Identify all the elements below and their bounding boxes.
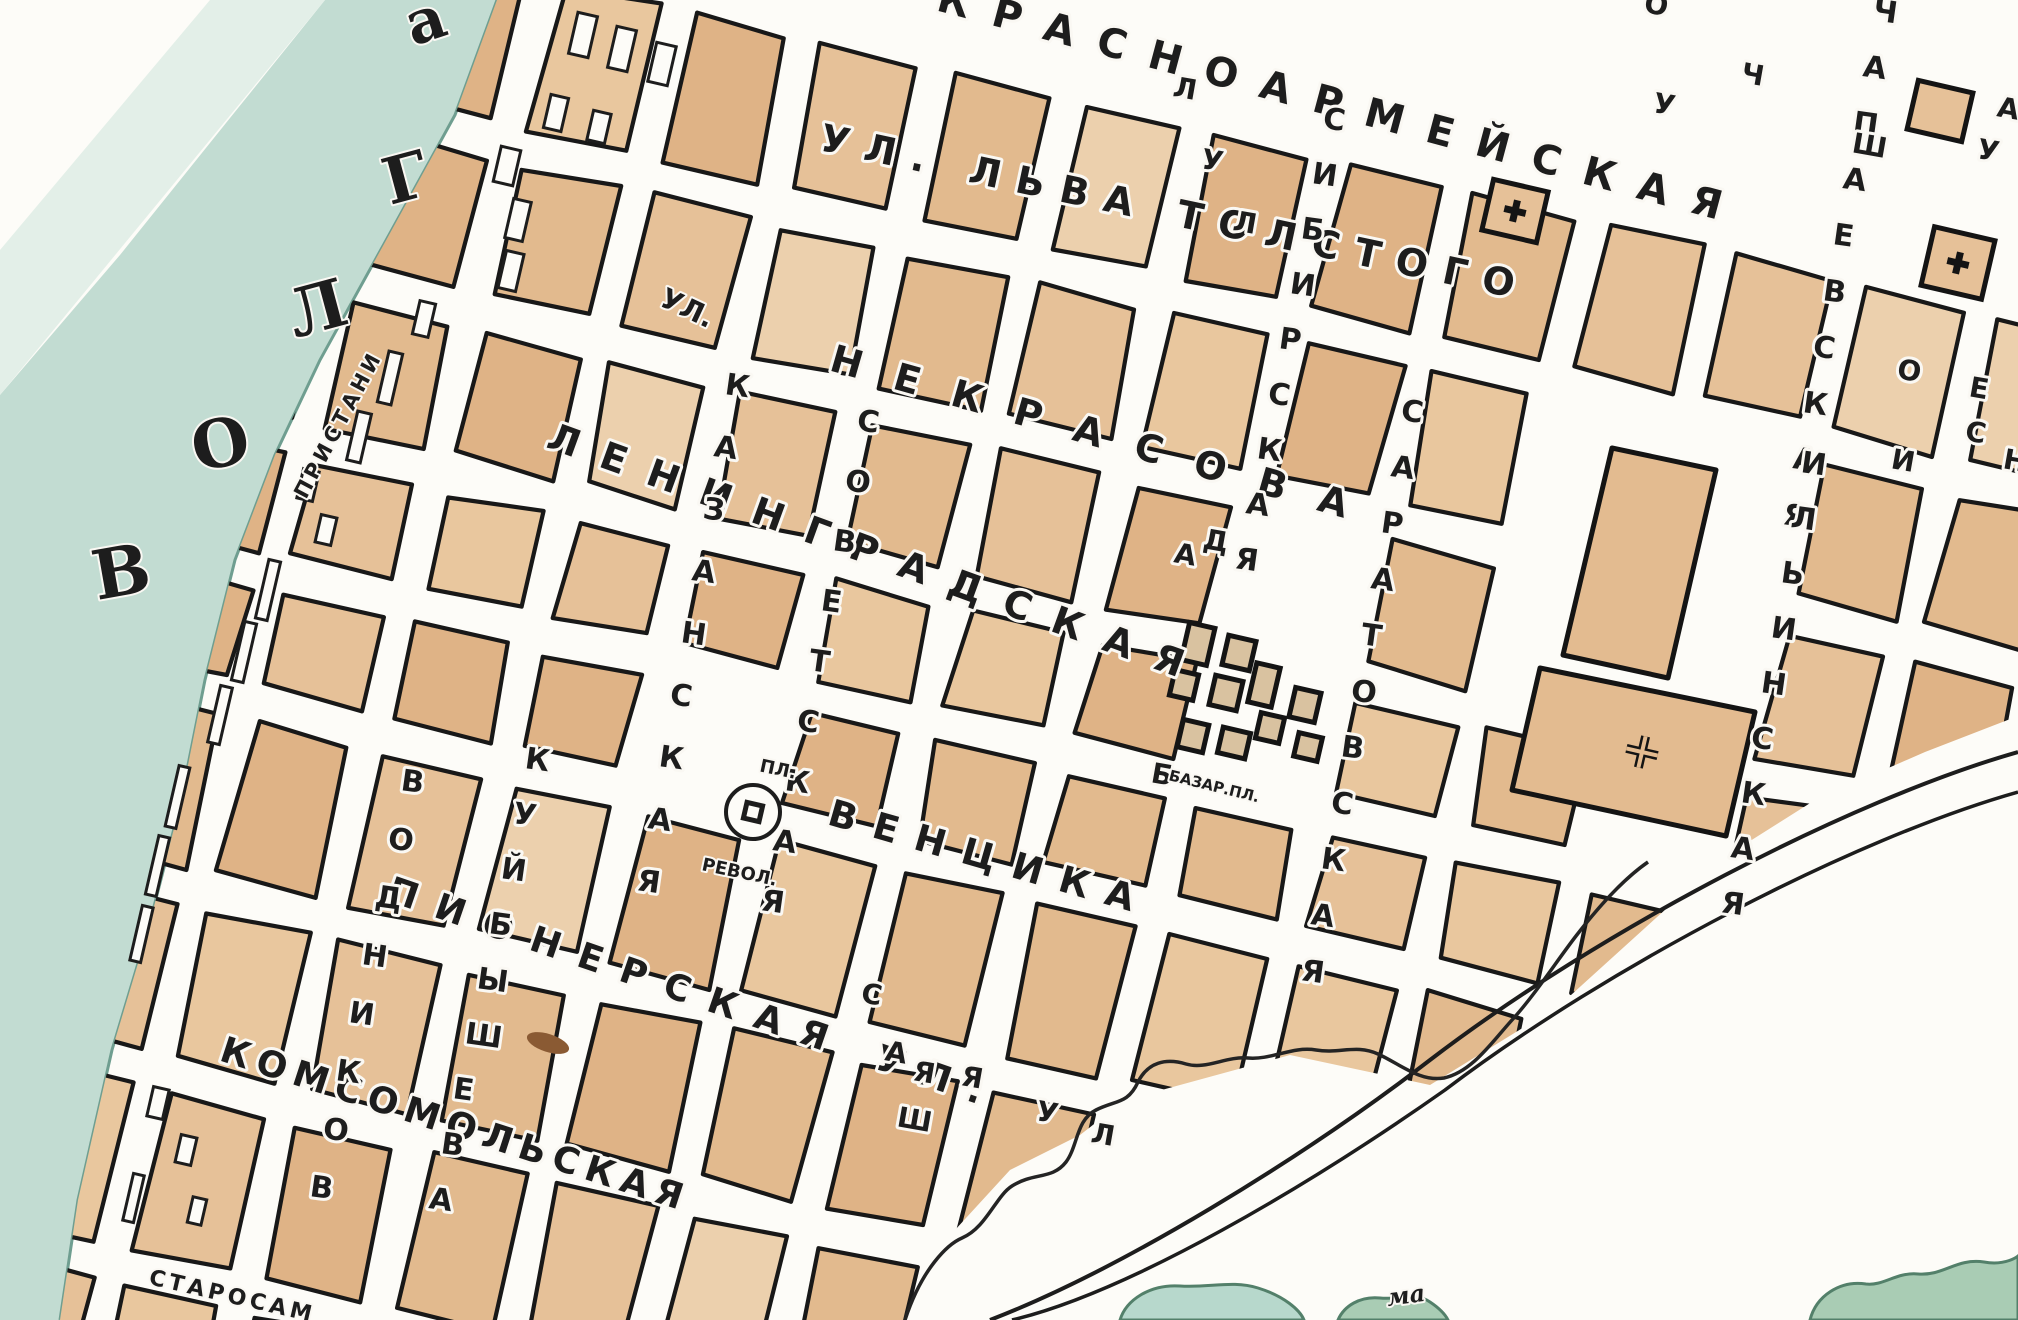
street-letter: Я — [635, 863, 663, 901]
city-block — [394, 621, 507, 743]
city-block — [1657, 1051, 1782, 1228]
stray-letter: О — [1642, 0, 1671, 23]
street-letter: Б — [1299, 211, 1327, 249]
city-block — [917, 1273, 1049, 1320]
street-letter: К — [1801, 385, 1831, 423]
monument-square-icon — [743, 802, 762, 821]
pond-note: ма — [1385, 1278, 1427, 1312]
street-letter: С — [668, 677, 695, 715]
street-letter: С — [1811, 329, 1838, 367]
street-letter: Е — [1831, 217, 1856, 255]
street-letter: В — [399, 763, 427, 801]
city-block — [1180, 808, 1292, 919]
city-block — [1799, 465, 1922, 622]
street-letter: Й — [499, 850, 529, 889]
street-letter: В — [831, 523, 859, 561]
pier — [493, 146, 521, 186]
city-block — [132, 1093, 264, 1268]
street-letter: З — [701, 491, 727, 529]
city-block — [1784, 1085, 1920, 1258]
street-letter: Н — [679, 615, 709, 653]
street-letter: У — [511, 796, 539, 834]
street-letter: Я — [1299, 953, 1327, 991]
city-block — [958, 1093, 1094, 1258]
small-block — [1907, 80, 1973, 141]
street-letter: Ш — [463, 1016, 505, 1056]
market-stall — [1209, 675, 1243, 711]
city-block — [1754, 636, 1883, 776]
city-block — [663, 13, 784, 185]
street-letter: С — [1321, 101, 1348, 139]
city-block — [1924, 500, 2018, 651]
city-block — [1132, 934, 1267, 1103]
street-letter: О — [321, 1111, 351, 1149]
market-label: БАЗАР.ПЛ. — [1167, 766, 1261, 806]
street-letter: Д — [373, 879, 404, 917]
street-letter: Н — [1759, 665, 1789, 703]
pond — [1120, 1284, 1304, 1320]
hospital-l-block-part1 — [1563, 448, 1716, 678]
stray-letter: Ш — [895, 1100, 935, 1139]
street-letter: О — [843, 463, 873, 501]
street-letter: Ч — [1871, 0, 1900, 31]
monument-outer-circle — [726, 785, 780, 839]
city-block — [267, 1128, 391, 1303]
city-block — [654, 1219, 787, 1320]
revolution-square-monument — [726, 785, 780, 839]
city-block — [1007, 904, 1135, 1079]
pier — [255, 559, 280, 620]
street-letter: В — [1339, 729, 1367, 767]
street-letter: И — [1310, 156, 1340, 194]
city-block — [1611, 1247, 1743, 1320]
city-block — [1827, 956, 1947, 1071]
city-block — [397, 1152, 528, 1320]
stray-letter: Л — [1171, 70, 1200, 107]
stray-letter: А — [1995, 90, 2018, 126]
street-letter: В — [308, 1169, 336, 1207]
stray-letter: Д — [1201, 522, 1231, 559]
city-block — [1889, 662, 2013, 806]
city-block — [429, 498, 544, 607]
street-letter: Р — [1379, 505, 1406, 543]
street-letter: Ь — [1779, 555, 1807, 593]
city-block — [1482, 1213, 1615, 1320]
street-letter: О — [386, 821, 416, 859]
market-stall — [1217, 727, 1250, 759]
city-block — [264, 595, 384, 712]
market-stall — [1177, 719, 1209, 752]
bush-corner — [1810, 1256, 2018, 1320]
market-stall — [1294, 733, 1323, 762]
street-letter: Б — [487, 906, 515, 944]
stray-letter: У — [1975, 132, 2002, 168]
stray-letter: Л — [1089, 1116, 1118, 1153]
city-map: ВОЛГаПРИСТАНИКРАСНОАРМЕЙСКАЯУЛ. ЛЬВА ТОЛ… — [0, 0, 2018, 1320]
market-stall — [1222, 635, 1256, 671]
street-letter: И — [1799, 445, 1829, 483]
city-block — [788, 1248, 918, 1320]
street-letter: К — [657, 739, 687, 777]
street-letter: К — [523, 741, 553, 779]
street-letter: Я — [1719, 885, 1747, 923]
street-letter: А — [1244, 486, 1273, 524]
city-block — [216, 721, 346, 898]
street-letter: Я — [1233, 541, 1261, 579]
street-letter: Р — [1277, 321, 1304, 359]
street-letter: Л — [1789, 500, 1819, 538]
city-block — [1410, 371, 1526, 524]
street-letter: И — [1288, 266, 1318, 304]
street-letter: А — [1861, 49, 1890, 87]
street-letter: И — [1769, 610, 1799, 648]
street-letter: А — [1841, 161, 1870, 199]
city-block — [1524, 1027, 1654, 1197]
street-letter: Ы — [475, 961, 511, 1000]
city-block — [1368, 539, 1494, 691]
map-canvas: ВОЛГаПРИСТАНИКРАСНОАРМЕЙСКАЯУЛ. ЛЬВА ТОЛ… — [0, 0, 2018, 1320]
street-letter: В — [1821, 273, 1849, 311]
stray-letter: Ч — [1739, 56, 1767, 92]
city-block — [1574, 225, 1704, 394]
street-letter: В — [439, 1126, 467, 1164]
market-stall — [1289, 687, 1321, 722]
street-letter: О — [1349, 673, 1379, 711]
city-block — [1698, 921, 1812, 1042]
market-stall — [1255, 713, 1284, 744]
street-letter: Н — [360, 937, 390, 975]
city-block — [870, 873, 1003, 1045]
street-letter: И — [347, 995, 377, 1033]
street-letter: С — [1329, 785, 1356, 823]
revolution-square-label-top: ПЛ. — [758, 756, 798, 784]
city-block — [553, 523, 668, 633]
stray-letter: У — [1651, 86, 1678, 122]
stray-letter: Ш — [1850, 126, 1890, 165]
market-stall — [1248, 663, 1280, 707]
stray-letter: И — [1889, 442, 1918, 479]
city-block — [1441, 863, 1559, 984]
street-letter: С — [1266, 376, 1293, 414]
greenery-group — [1120, 1256, 2018, 1320]
